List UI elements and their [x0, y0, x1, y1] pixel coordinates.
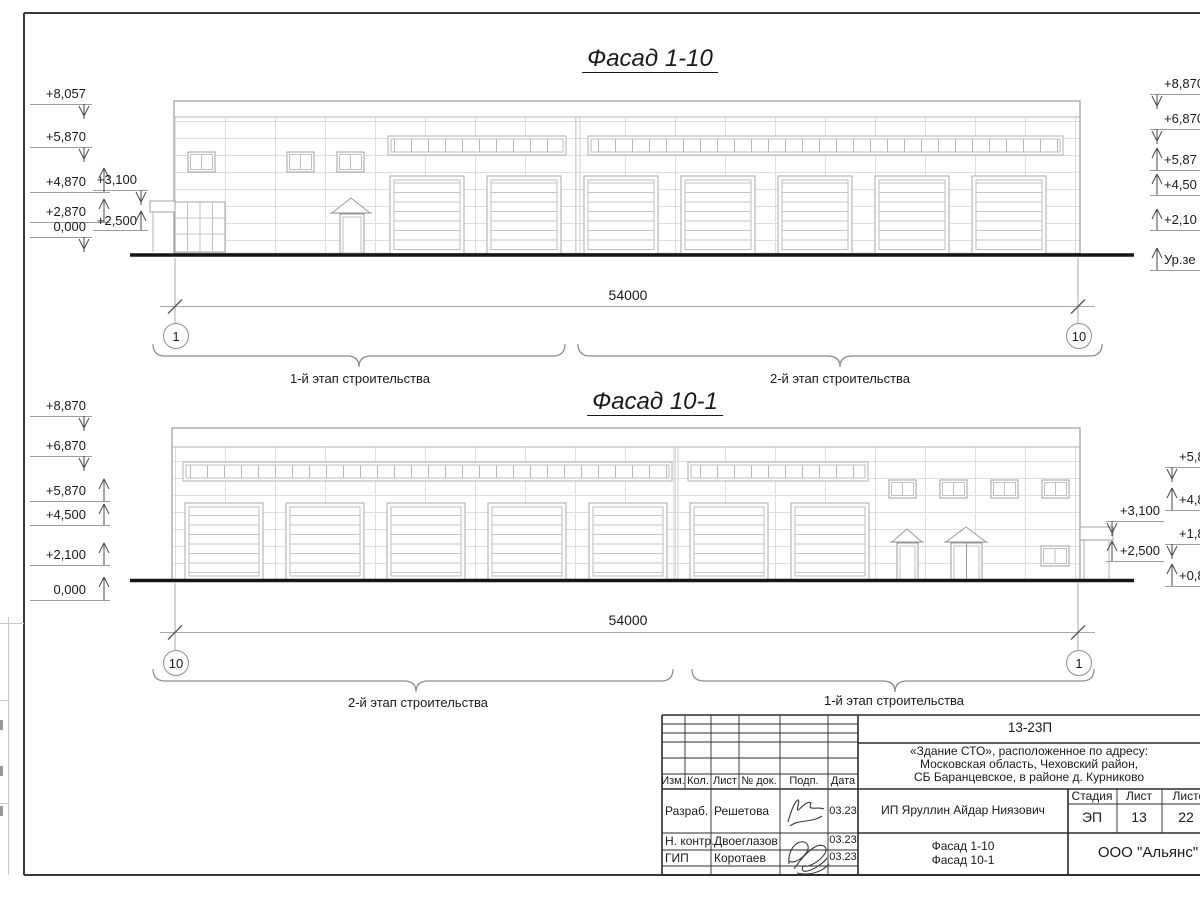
clerestory-band	[388, 136, 1063, 155]
elevation-mark: +2,100	[46, 548, 86, 562]
garage-doors	[185, 503, 869, 580]
axis-bubble: 1	[1066, 650, 1092, 676]
glazed-vestibule	[150, 201, 225, 252]
date-cell: 03.23	[829, 835, 857, 847]
facade-10-1-drawing	[30, 416, 1200, 692]
drawing-sheet: { "drawing": { "facade_top": { "title": …	[0, 0, 1200, 900]
elevation-mark: +4,870	[46, 175, 86, 189]
left-margin-text-marks	[0, 720, 3, 816]
name-cell: Решетова	[714, 805, 769, 818]
role-cell: Разраб.	[665, 805, 708, 818]
elevation-mark: +6,870	[1164, 112, 1200, 126]
signature-strokes	[788, 800, 829, 874]
elevation-mark: +2,500	[97, 214, 137, 228]
stage-braces	[153, 344, 1102, 367]
name-cell: Коротаев	[714, 852, 766, 865]
facade-bottom-title: Фасад 10-1	[587, 389, 723, 416]
elevation-mark: +3,100	[97, 173, 137, 187]
sheet-name-line: Фасад 10-1	[932, 854, 995, 867]
facade-top-title: Фасад 1-10	[582, 46, 718, 73]
elevation-mark: +5,87	[1164, 153, 1197, 167]
sheets-value: 22	[1178, 810, 1194, 825]
elevation-mark: +3,100	[1120, 504, 1160, 518]
date-cell: 03.23	[829, 806, 857, 818]
column-header: Подп.	[789, 776, 818, 788]
elevation-mark: +1,8	[1179, 527, 1200, 541]
role-cell: ГИП	[665, 852, 689, 865]
elevation-mark: +2,10	[1164, 213, 1197, 227]
project-address-line: «Здание СТО», расположенное по адресу:	[910, 745, 1148, 758]
name-cell: Двоеглазов	[714, 835, 778, 848]
stage-header: Стадия	[1072, 790, 1113, 803]
elevation-mark: +8,870	[1164, 77, 1200, 91]
elevation-mark: +4,500	[46, 508, 86, 522]
document-code: 13-23П	[1008, 721, 1052, 735]
role-cell: Н. контр.	[665, 835, 715, 848]
column-header: Лист	[713, 776, 737, 788]
sheet-header: Лист	[1126, 790, 1152, 803]
elevation-mark: +8,057	[46, 87, 86, 101]
elevation-mark: 0,000	[53, 583, 86, 597]
date-cell: 03.23	[829, 852, 857, 864]
stage-value: ЭП	[1082, 810, 1102, 825]
column-header: Изм.	[661, 776, 685, 788]
elevation-mark: +5,870	[46, 484, 86, 498]
elevation-mark: +2,500	[1120, 544, 1160, 558]
stage-braces	[153, 669, 1094, 692]
stage-label: 2-й этап строительства	[348, 696, 488, 710]
dimension-value: 54000	[609, 613, 648, 628]
company-name: ООО "Альянс"	[1098, 845, 1198, 861]
elevation-mark: +6,870	[46, 439, 86, 453]
sheet-name-line: Фасад 1-10	[932, 840, 995, 853]
side-canopy	[1080, 527, 1113, 580]
garage-doors	[390, 176, 1046, 254]
project-address-line: СБ Баранцевское, в районе д. Курниково	[914, 771, 1144, 784]
stage-label: 1-й этап строительства	[290, 372, 430, 386]
project-address-line: Московская область, Чеховский район,	[920, 758, 1138, 771]
sheets-header: Листов	[1173, 790, 1200, 803]
stage-label: 2-й этап строительства	[770, 372, 910, 386]
clerestory-band	[183, 462, 868, 481]
elevation-mark: +2,870	[46, 205, 86, 219]
sheet-value: 13	[1131, 810, 1147, 825]
column-header: № док.	[741, 776, 776, 788]
elevation-mark: +4,50	[1164, 178, 1197, 192]
axis-bubble: 10	[163, 650, 189, 676]
column-header: Дата	[831, 776, 855, 788]
dimension-value: 54000	[609, 288, 648, 303]
axis-bubble: 1	[163, 323, 189, 349]
axis-bubble: 10	[1066, 323, 1092, 349]
column-header: Кол.	[687, 776, 709, 788]
facade-1-10-drawing	[30, 94, 1200, 367]
lower-window	[1041, 546, 1069, 566]
elevation-mark: +8,870	[46, 399, 86, 413]
elevation-mark: +0,8	[1179, 569, 1200, 583]
elevation-mark: +5,8	[1179, 450, 1200, 464]
elevation-mark: 0,000	[53, 220, 86, 234]
left-margin-stamp	[0, 617, 24, 875]
elevation-mark: +5,870	[46, 130, 86, 144]
elevation-mark: Ур.зе	[1164, 253, 1196, 267]
elevation-mark: +4,8	[1179, 493, 1200, 507]
stage-label: 1-й этап строительства	[824, 694, 964, 708]
client-name: ИП Яруллин Айдар Ниязович	[881, 804, 1045, 817]
